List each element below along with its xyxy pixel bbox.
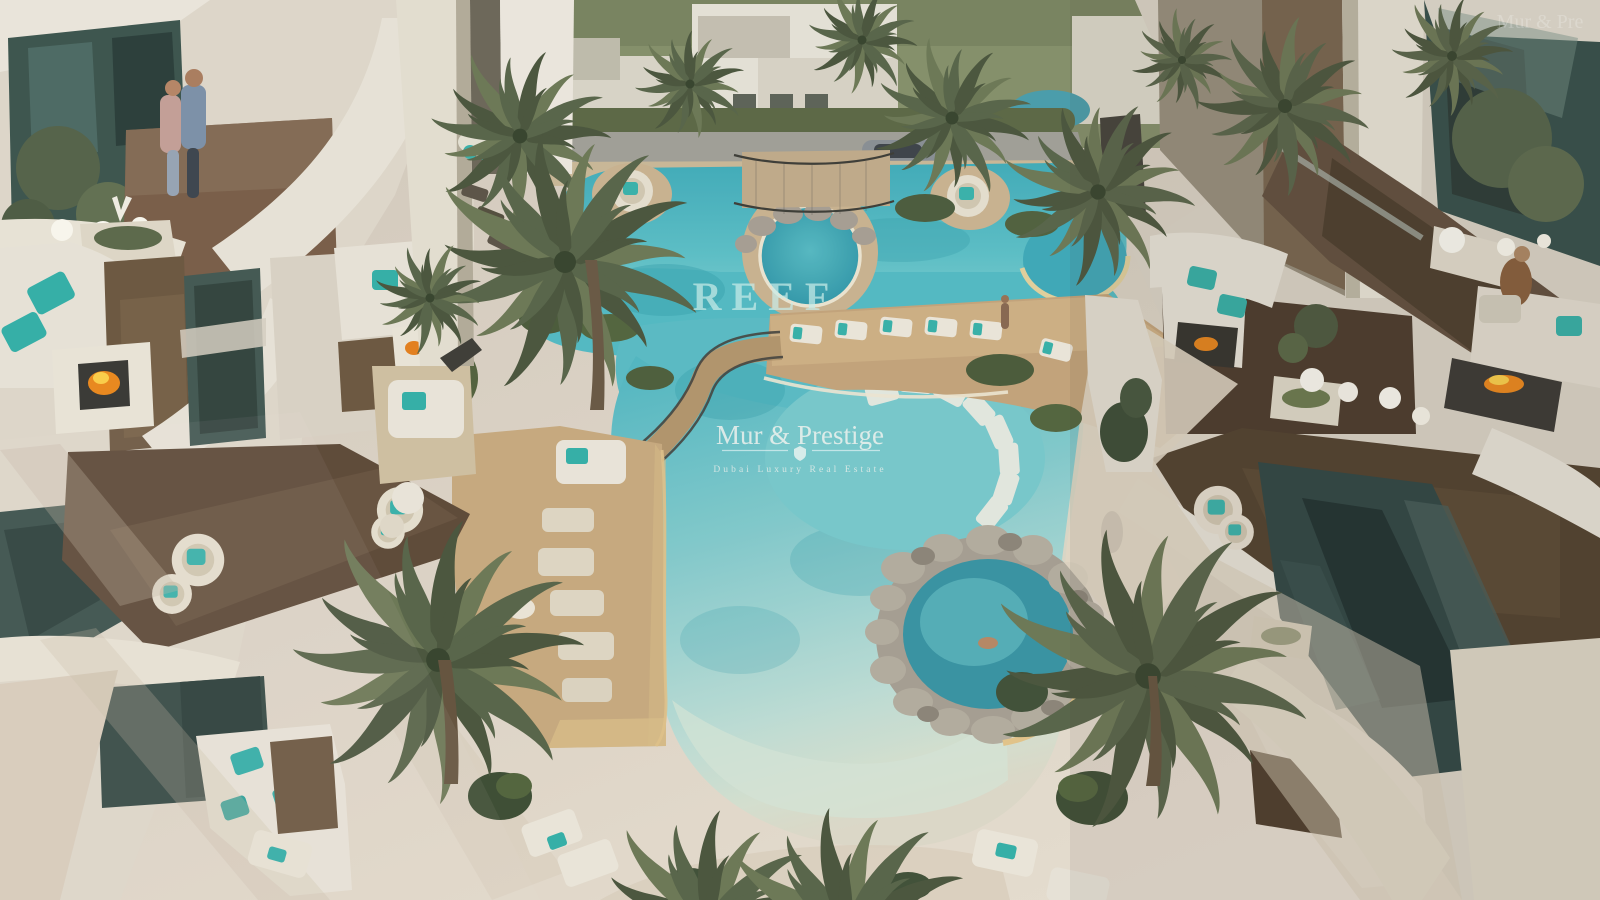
svg-text:Dubai Luxury Real Estate: Dubai Luxury Real Estate [713,465,886,475]
svg-text:REEF: REEF [693,274,840,319]
svg-text:Mur & Pre: Mur & Pre [1497,11,1584,33]
svg-text:Mur & Prestige: Mur & Prestige [716,420,884,450]
